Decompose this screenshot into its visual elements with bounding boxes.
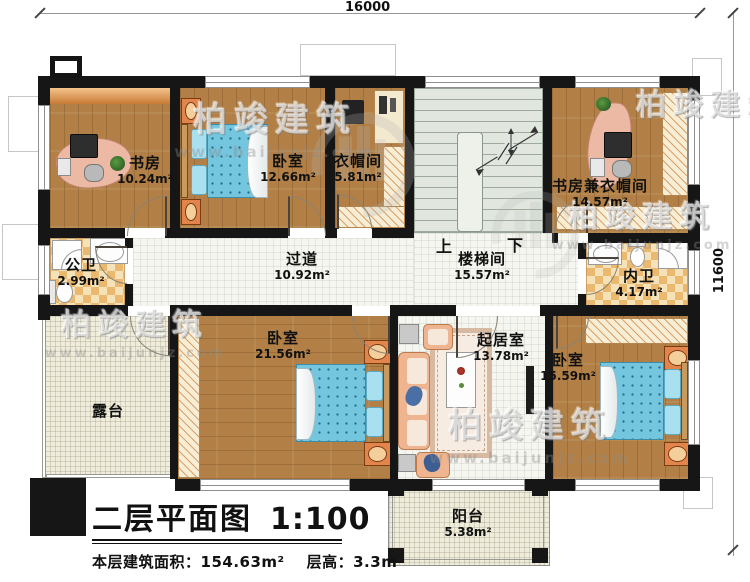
dim-label-right: 11600 — [712, 248, 727, 293]
balcony-post — [532, 548, 548, 563]
stair-down-label: 下 — [507, 232, 523, 256]
wall-segment — [38, 76, 50, 105]
bed-icon — [296, 364, 390, 442]
title-block: 二层平面图1:100 本层建筑面积：154.63m²层高：3.3m — [92, 504, 397, 572]
room-name: 卧室 — [255, 330, 311, 347]
stair-up-label: 上 — [436, 233, 452, 257]
window — [575, 479, 660, 491]
sheet-fold — [600, 366, 618, 438]
wall-segment — [170, 316, 178, 479]
dim-label-top: 16000 — [345, 0, 390, 15]
window — [205, 76, 310, 88]
pillow-icon — [664, 369, 681, 399]
room-label-bedroom1: 卧室 12.66m² — [260, 153, 316, 184]
room-label-bedroom2: 卧室 21.56m² — [255, 330, 311, 361]
window — [688, 360, 700, 445]
wardrobe-icon — [178, 318, 200, 478]
room-label-bedroom3: 卧室 15.59m² — [540, 352, 596, 383]
window — [575, 76, 660, 88]
wall-segment — [175, 479, 200, 491]
headboard — [181, 124, 188, 198]
room-area: 5.81m² — [334, 170, 382, 184]
balcony-post — [388, 482, 404, 496]
window — [38, 105, 50, 190]
room-area: 13.78m² — [473, 349, 529, 363]
pillow-icon — [191, 129, 207, 159]
wall-segment — [50, 228, 125, 238]
bay-outline — [300, 44, 396, 76]
floor-area-value: 154.63m² — [201, 553, 285, 571]
wall-segment — [170, 305, 352, 316]
office-chair-icon — [612, 160, 632, 178]
room-label-terrace: 露台 — [92, 403, 124, 420]
room-label-balcony: 阳台 5.38m² — [444, 508, 491, 539]
balcony-door — [432, 479, 525, 491]
toilet-icon — [630, 247, 645, 267]
wall-segment — [688, 185, 700, 250]
wardrobe-icon — [585, 318, 688, 344]
wall-segment — [390, 316, 398, 479]
title-scale: 1:100 — [270, 502, 371, 537]
nightstand-icon — [181, 199, 201, 225]
column — [30, 478, 86, 536]
room-name: 公卫 — [57, 257, 104, 274]
floor-plan-canvas: 16000 11600 — [0, 0, 750, 582]
title-underline — [92, 543, 342, 544]
wall-segment — [540, 76, 575, 88]
pillow-icon — [366, 407, 383, 437]
room-label-cloakroom: 衣帽间 5.81m² — [334, 153, 382, 184]
room-area: 21.56m² — [255, 347, 311, 361]
window — [688, 100, 700, 185]
floor-height-value: 3.3m — [353, 553, 397, 571]
room-area: 15.57m² — [454, 268, 510, 282]
room-name: 内卫 — [615, 268, 662, 285]
room-area: 15.59m² — [540, 369, 596, 383]
keyboard-icon — [590, 158, 605, 177]
bed-icon — [181, 124, 268, 198]
room-label-study: 书房 10.24m² — [117, 155, 173, 186]
window — [425, 76, 540, 88]
window — [688, 250, 700, 295]
wall-segment — [38, 305, 128, 316]
floor-height-label: 层高： — [307, 553, 354, 571]
headboard — [681, 362, 688, 440]
wardrobe-icon — [662, 92, 688, 196]
wall-segment — [310, 76, 425, 88]
room-label-stairwell: 楼梯间 15.57m² — [454, 251, 510, 282]
headboard — [383, 364, 390, 442]
wall-segment — [545, 316, 553, 479]
side-table-icon — [399, 324, 419, 344]
room-label-study-cloak: 书房兼衣帽间 14.57m² — [552, 178, 648, 209]
balcony-post — [532, 482, 548, 496]
title-text: 二层平面图 — [92, 502, 252, 537]
study-cabinet — [50, 88, 170, 104]
nightstand-icon — [664, 442, 691, 466]
room-label-living: 起居室 13.78m² — [473, 332, 529, 363]
room-area: 5.38m² — [444, 525, 491, 539]
wall-segment — [688, 76, 700, 100]
wall-segment — [540, 305, 688, 316]
keyboard-icon — [57, 158, 71, 176]
office-chair-icon — [84, 164, 104, 182]
wall-segment — [688, 445, 700, 491]
wall-segment — [38, 190, 50, 245]
pillow-icon — [366, 371, 383, 401]
room-name: 卧室 — [540, 352, 596, 369]
wall-segment — [125, 284, 133, 306]
room-label-ensuite-bath: 内卫 4.17m² — [615, 268, 662, 299]
room-name: 衣帽间 — [334, 153, 382, 170]
coffee-table-icon — [446, 352, 476, 408]
monitor-icon — [70, 134, 98, 158]
room-area: 14.57m² — [552, 195, 648, 209]
room-label-public-bath: 公卫 2.99m² — [57, 257, 104, 288]
bay-outline — [8, 96, 40, 152]
room-name: 楼梯间 — [454, 251, 510, 268]
bed-icon — [600, 362, 688, 440]
side-table-icon — [398, 454, 416, 472]
floor-area-label: 本层建筑面积： — [92, 553, 201, 571]
bay-outline — [2, 224, 40, 280]
armchair-icon — [423, 324, 453, 350]
tv-icon — [526, 366, 534, 414]
room-name: 书房 — [117, 155, 173, 172]
room-name: 阳台 — [444, 508, 491, 525]
nightstand-icon — [364, 442, 391, 466]
pillow-icon — [664, 405, 681, 435]
plant-icon — [596, 97, 611, 111]
room-area: 12.66m² — [260, 170, 316, 184]
wall-segment — [390, 305, 456, 316]
chimney — [50, 56, 82, 78]
room-name: 过道 — [274, 251, 330, 268]
monitor-icon — [604, 132, 632, 158]
room-area: 10.24m² — [117, 172, 173, 186]
room-name: 卧室 — [260, 153, 316, 170]
wall-segment — [588, 233, 688, 243]
room-area: 10.92m² — [274, 268, 330, 282]
room-label-hallway: 过道 10.92m² — [274, 251, 330, 282]
dim-line-right — [733, 13, 734, 556]
wall-segment — [165, 228, 288, 238]
nightstand-icon — [181, 98, 201, 124]
railing — [42, 316, 46, 478]
room-area: 2.99m² — [57, 274, 104, 288]
wall-segment — [688, 295, 700, 360]
window — [38, 245, 50, 295]
pillow-icon — [191, 165, 207, 195]
room-area: 4.17m² — [615, 285, 662, 299]
sheet-fold — [296, 368, 316, 440]
shower-icon — [658, 239, 688, 269]
title-underline — [92, 539, 342, 541]
window — [200, 479, 350, 491]
room-name: 起居室 — [473, 332, 529, 349]
room-name: 书房兼衣帽间 — [552, 178, 648, 195]
room-name: 露台 — [92, 403, 124, 420]
